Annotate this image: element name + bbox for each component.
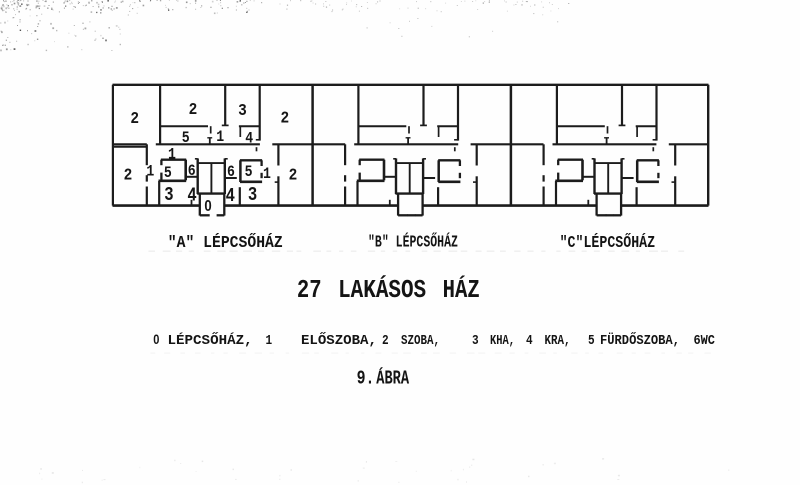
svg-text:3: 3 [164,186,173,207]
svg-text:2: 2 [280,108,289,127]
svg-text:HÁZ: HÁZ [443,275,480,306]
svg-text:2: 2 [130,109,139,128]
svg-text:4: 4 [226,187,235,208]
svg-text:KHA,: KHA, [490,333,515,349]
svg-text:0: 0 [153,331,159,348]
svg-text:4: 4 [245,130,253,147]
svg-text:2: 2 [124,165,133,184]
svg-text:"B" LÉPCSŐHÁZ: "B" LÉPCSŐHÁZ [368,231,458,252]
svg-text:5: 5 [245,164,253,181]
svg-text:3: 3 [248,186,257,207]
svg-text:LÉPCSŐHÁZ,: LÉPCSŐHÁZ, [168,331,253,349]
svg-text:ÁBRA: ÁBRA [376,367,409,389]
svg-text:6WC: 6WC [694,332,716,348]
svg-text:5: 5 [182,130,190,147]
svg-text:FÜRDŐSZOBA,: FÜRDŐSZOBA, [600,331,680,348]
svg-text:2: 2 [289,165,298,184]
svg-text:4: 4 [187,186,196,207]
svg-text:1: 1 [168,146,176,163]
svg-text:SZOBA,: SZOBA, [401,332,440,349]
svg-text:LAKÁSOS: LAKÁSOS [338,275,426,306]
svg-text:3: 3 [472,332,479,349]
svg-text:4: 4 [526,332,533,349]
svg-text:1: 1 [263,166,271,183]
svg-text:0: 0 [204,198,211,215]
svg-text:2: 2 [382,332,389,349]
svg-text:ELŐSZOBA,: ELŐSZOBA, [301,331,377,349]
svg-text:6: 6 [188,163,196,180]
svg-text:5: 5 [164,165,172,182]
svg-text:"A" LÉPCSŐHÁZ: "A" LÉPCSŐHÁZ [168,232,283,252]
svg-text:1: 1 [216,129,224,146]
svg-text:27: 27 [297,276,322,306]
svg-text:6: 6 [227,164,235,181]
svg-text:KRA,: KRA, [544,332,570,349]
svg-text:.: . [366,369,375,390]
svg-text:5: 5 [588,332,595,349]
svg-text:9: 9 [357,369,366,390]
svg-text:3: 3 [238,101,247,120]
svg-text:2: 2 [189,100,198,119]
svg-text:1: 1 [146,164,154,181]
svg-text:1: 1 [265,332,272,349]
svg-text:"C"LÉPCSŐHÁZ: "C"LÉPCSŐHÁZ [560,233,655,253]
